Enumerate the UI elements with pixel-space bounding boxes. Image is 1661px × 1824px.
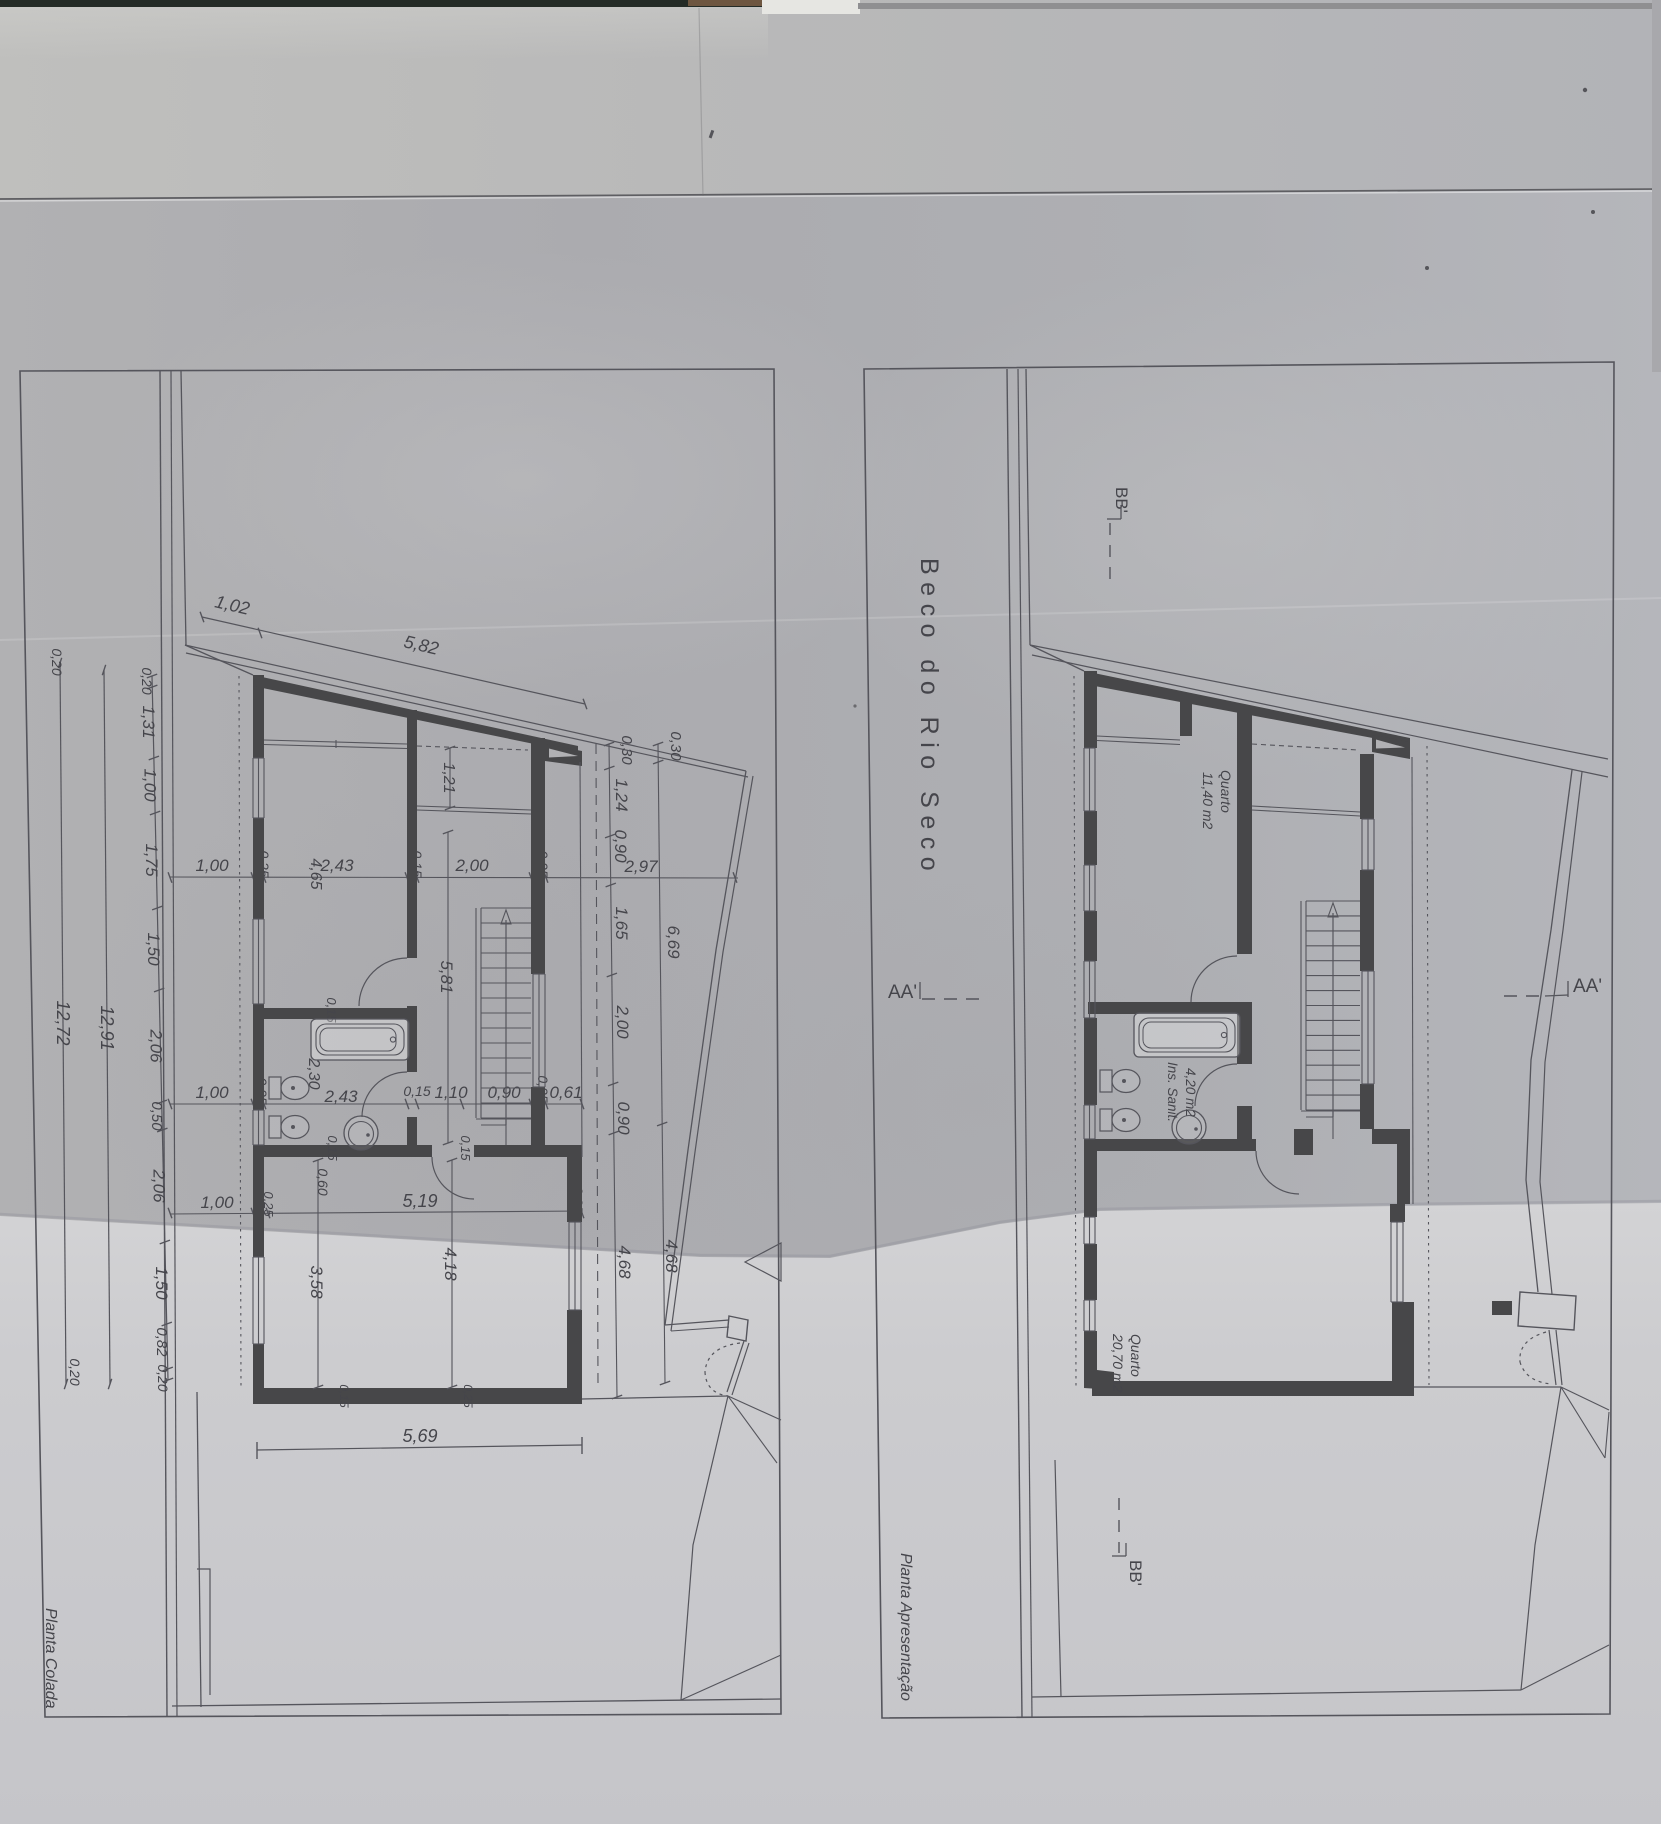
- svg-text:1,10: 1,10: [434, 1083, 468, 1102]
- svg-text:Planta Apresentação: Planta Apresentação: [897, 1553, 914, 1701]
- svg-text:0,82: 0,82: [153, 1327, 170, 1357]
- svg-text:1,50: 1,50: [152, 1266, 171, 1300]
- svg-text:1,24: 1,24: [612, 778, 631, 811]
- svg-text:0,25: 0,25: [461, 1384, 475, 1408]
- svg-text:1,00: 1,00: [200, 1193, 234, 1212]
- svg-text:1,00: 1,00: [195, 1083, 229, 1102]
- svg-text:2,00: 2,00: [454, 856, 489, 875]
- svg-text:2,43: 2,43: [319, 856, 354, 875]
- svg-text:0,90: 0,90: [487, 1083, 521, 1102]
- svg-text:BB': BB': [1126, 1560, 1145, 1586]
- svg-text:2,97: 2,97: [623, 857, 658, 876]
- svg-text:11,40 m2: 11,40 m2: [1200, 772, 1216, 830]
- svg-text:AA': AA': [888, 982, 917, 1003]
- svg-text:AA': AA': [1573, 976, 1602, 997]
- svg-text:0,15: 0,15: [403, 1083, 430, 1099]
- svg-text:Quarto: Quarto: [1218, 770, 1234, 813]
- svg-text:Beco do Rio Seco: Beco do Rio Seco: [915, 558, 943, 878]
- svg-text:0,60: 0,60: [315, 1168, 331, 1195]
- svg-text:1,31: 1,31: [139, 705, 158, 738]
- svg-text:0,20: 0,20: [67, 1358, 83, 1385]
- svg-text:0,15: 0,15: [325, 1135, 340, 1161]
- svg-text:0,30: 0,30: [667, 731, 684, 761]
- svg-text:6,69: 6,69: [664, 925, 683, 959]
- svg-text:1,00: 1,00: [140, 768, 159, 802]
- svg-text:4,20 m2: 4,20 m2: [1183, 1068, 1198, 1117]
- svg-text:5,69: 5,69: [402, 1426, 437, 1446]
- svg-text:0,61: 0,61: [549, 1083, 582, 1102]
- svg-text:2,06: 2,06: [146, 1028, 165, 1063]
- svg-text:4,68: 4,68: [615, 1245, 634, 1279]
- svg-text:12,72: 12,72: [53, 1000, 73, 1045]
- svg-text:2,00: 2,00: [613, 1004, 632, 1039]
- svg-text:0,30: 0,30: [618, 735, 635, 765]
- svg-text:2,43: 2,43: [323, 1087, 358, 1106]
- svg-text:0,15: 0,15: [337, 1384, 351, 1408]
- svg-text:20,70 m2: 20,70 m2: [1110, 1333, 1126, 1393]
- svg-text:1,00: 1,00: [195, 856, 229, 875]
- svg-text:1,50: 1,50: [144, 932, 163, 966]
- svg-text:0,20: 0,20: [155, 1364, 171, 1391]
- svg-text:5,81: 5,81: [437, 960, 456, 993]
- svg-text:0,20: 0,20: [49, 648, 65, 675]
- svg-text:0,50: 0,50: [148, 1101, 165, 1131]
- svg-text:1,65: 1,65: [612, 906, 631, 940]
- svg-text:0,15: 0,15: [458, 1135, 473, 1161]
- svg-text:1,21: 1,21: [440, 762, 457, 793]
- svg-text:4,18: 4,18: [441, 1247, 460, 1281]
- svg-text:Ins. Sanit.: Ins. Sanit.: [1165, 1062, 1180, 1122]
- svg-text:5,19: 5,19: [402, 1191, 437, 1211]
- svg-text:4,68: 4,68: [662, 1239, 681, 1273]
- svg-text:Planta Colada: Planta Colada: [42, 1608, 59, 1709]
- svg-text:Quarto: Quarto: [1128, 1334, 1144, 1377]
- svg-text:3,58: 3,58: [307, 1265, 326, 1299]
- svg-text:0,90: 0,90: [614, 1101, 633, 1135]
- svg-text:1,75: 1,75: [142, 843, 161, 877]
- svg-text:2,06: 2,06: [150, 1168, 169, 1203]
- svg-text:0,20: 0,20: [139, 667, 155, 694]
- svg-text:12,91: 12,91: [97, 1005, 117, 1050]
